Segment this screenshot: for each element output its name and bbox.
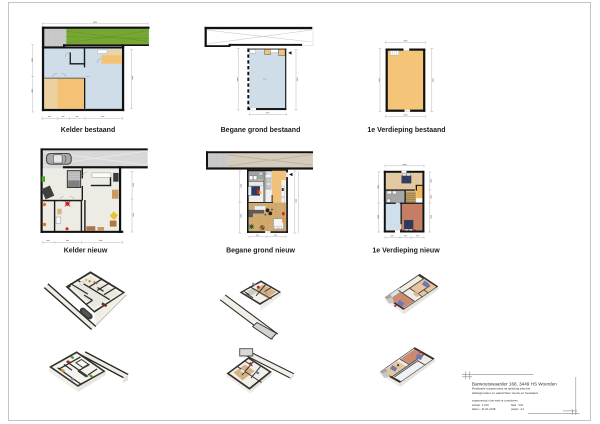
svg-text:Realisatie koopwoning na split: Realisatie koopwoning na splitsing perce… — [472, 387, 531, 391]
svg-text:maatvoering in het werk te con: maatvoering in het werk te controleren — [472, 399, 518, 403]
svg-text:Begane grond bestaand: Begane grond bestaand — [221, 127, 301, 134]
svg-text:Kelder nieuw: Kelder nieuw — [64, 247, 108, 254]
svg-text:plattegronden en aanzichten ni: plattegronden en aanzichten nieuw en bes… — [472, 391, 538, 395]
svg-text:papier : A1: papier : A1 — [511, 407, 524, 411]
svg-text:Begane grond nieuw: Begane grond nieuw — [226, 247, 295, 254]
svg-text:datum : 31-01-2018: datum : 31-01-2018 — [472, 407, 496, 411]
svg-text:1e Verdieping nieuw: 1e Verdieping nieuw — [372, 247, 440, 254]
svg-text:schaal : 1:100: schaal : 1:100 — [472, 403, 489, 407]
svg-text:Kelder bestaand: Kelder bestaand — [61, 127, 115, 134]
svg-text:blad : V01: blad : V01 — [511, 403, 524, 407]
svg-text:1e Verdieping bestaand: 1e Verdieping bestaand — [367, 127, 445, 134]
